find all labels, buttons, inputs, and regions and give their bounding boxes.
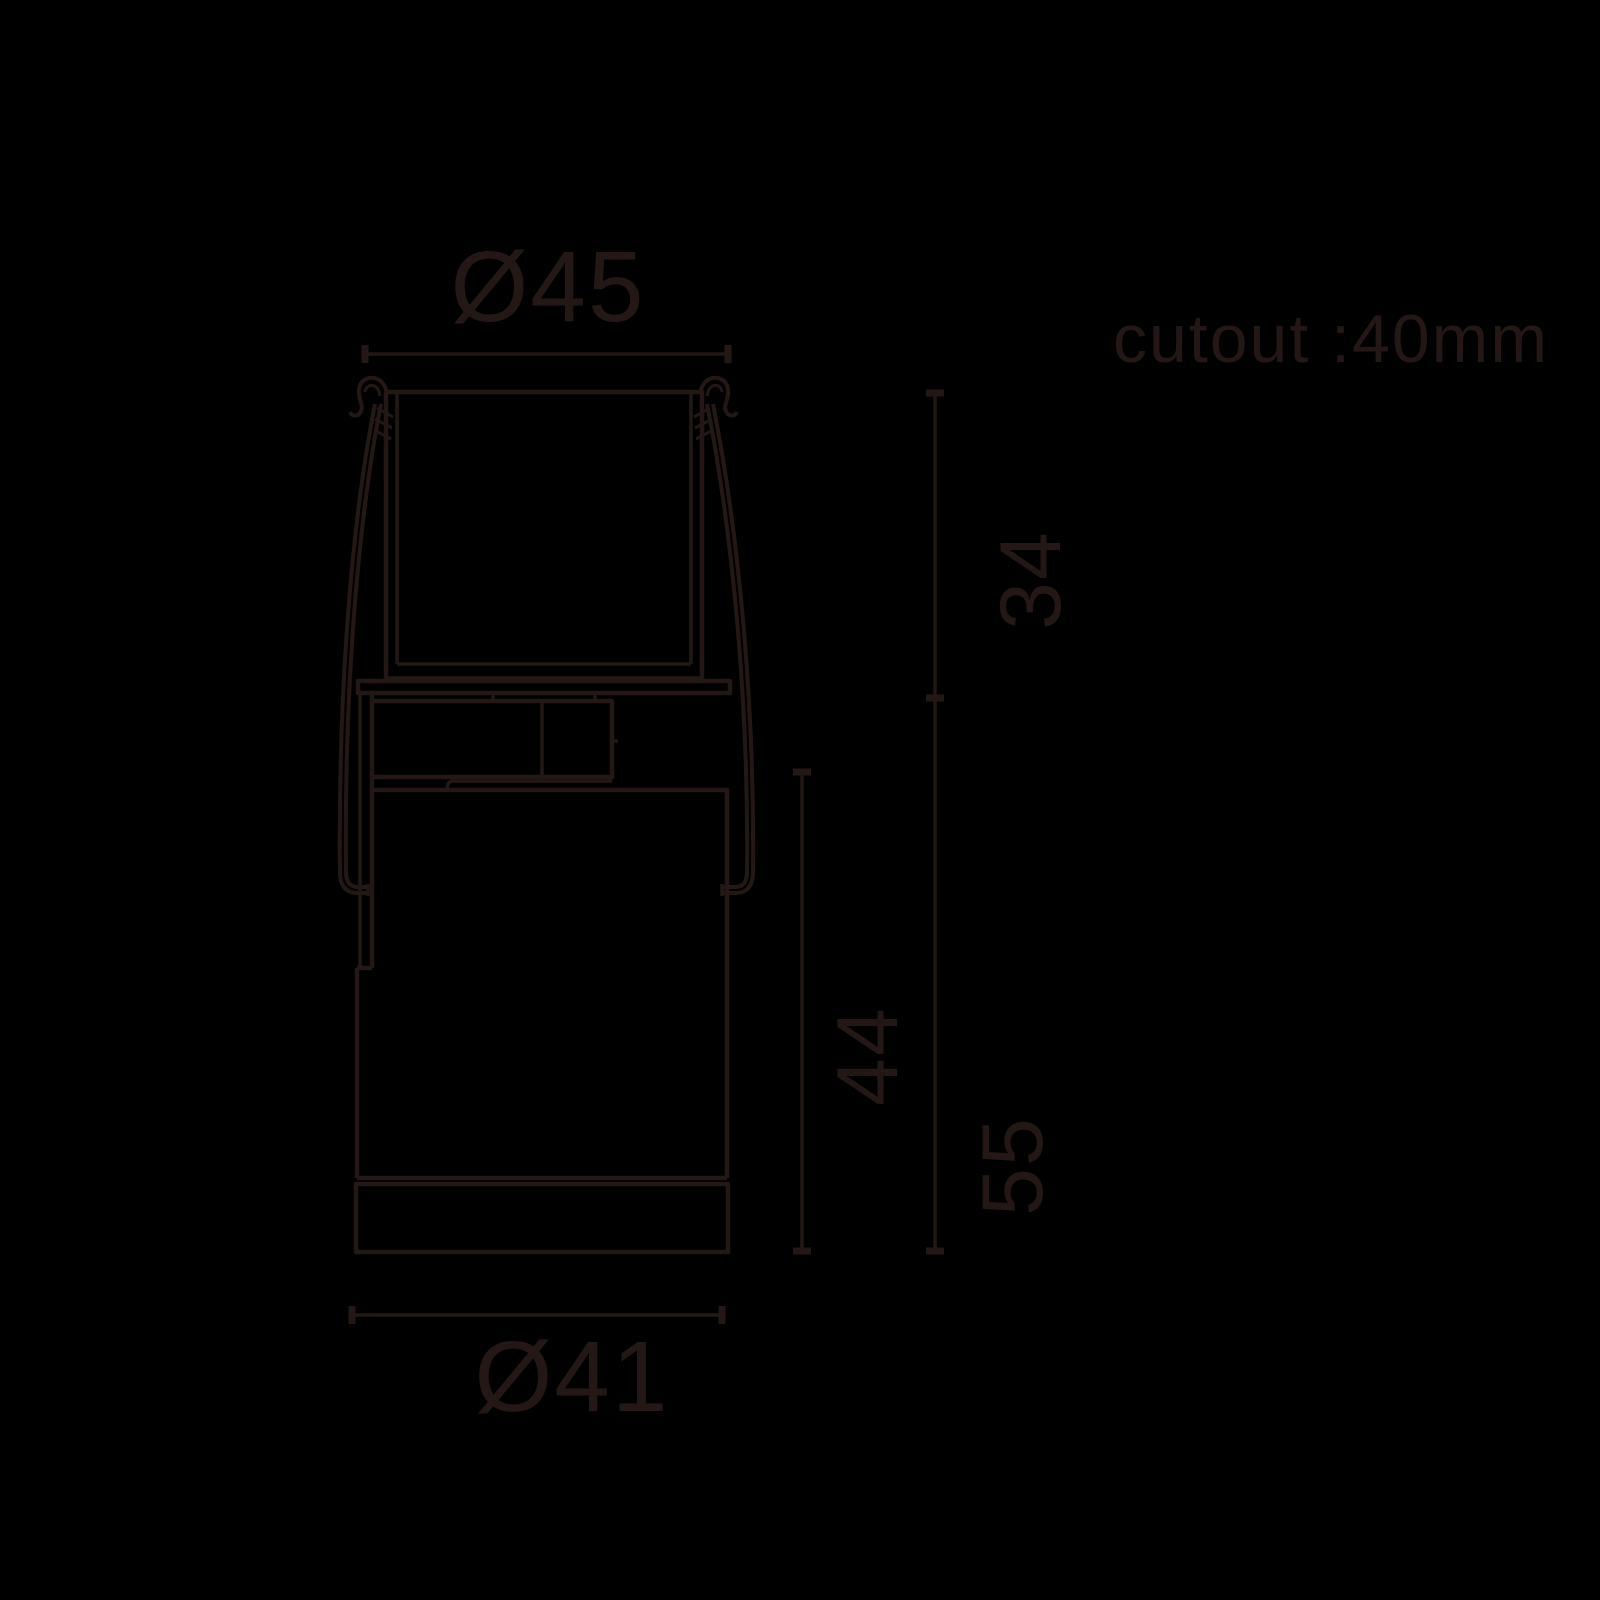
reflector-housing [386, 392, 702, 681]
dim-label-body-height: 44 [825, 1006, 911, 1106]
dim-line-44 [793, 772, 811, 1251]
technical-drawing-canvas: Ø45 cutout :40mm 34 44 55 Ø41 [0, 0, 1600, 1600]
cutout-note-label: cutout :40mm [1113, 305, 1549, 373]
dim-label-bottom-diameter: Ø41 [474, 1327, 669, 1427]
dim-label-overall-height: 55 [970, 1116, 1056, 1216]
fixture-outline [340, 378, 753, 1252]
dim-label-top-diameter: Ø45 [450, 237, 645, 337]
bottom-cap [356, 1184, 728, 1252]
downlight-dimension-drawing [0, 0, 1600, 1600]
terminal-box [372, 693, 618, 790]
dim-line-top-diameter [365, 345, 728, 363]
trim-flange [358, 681, 730, 693]
dim-label-upper-height: 34 [988, 530, 1074, 630]
dim-line-34-55 [926, 393, 944, 1251]
